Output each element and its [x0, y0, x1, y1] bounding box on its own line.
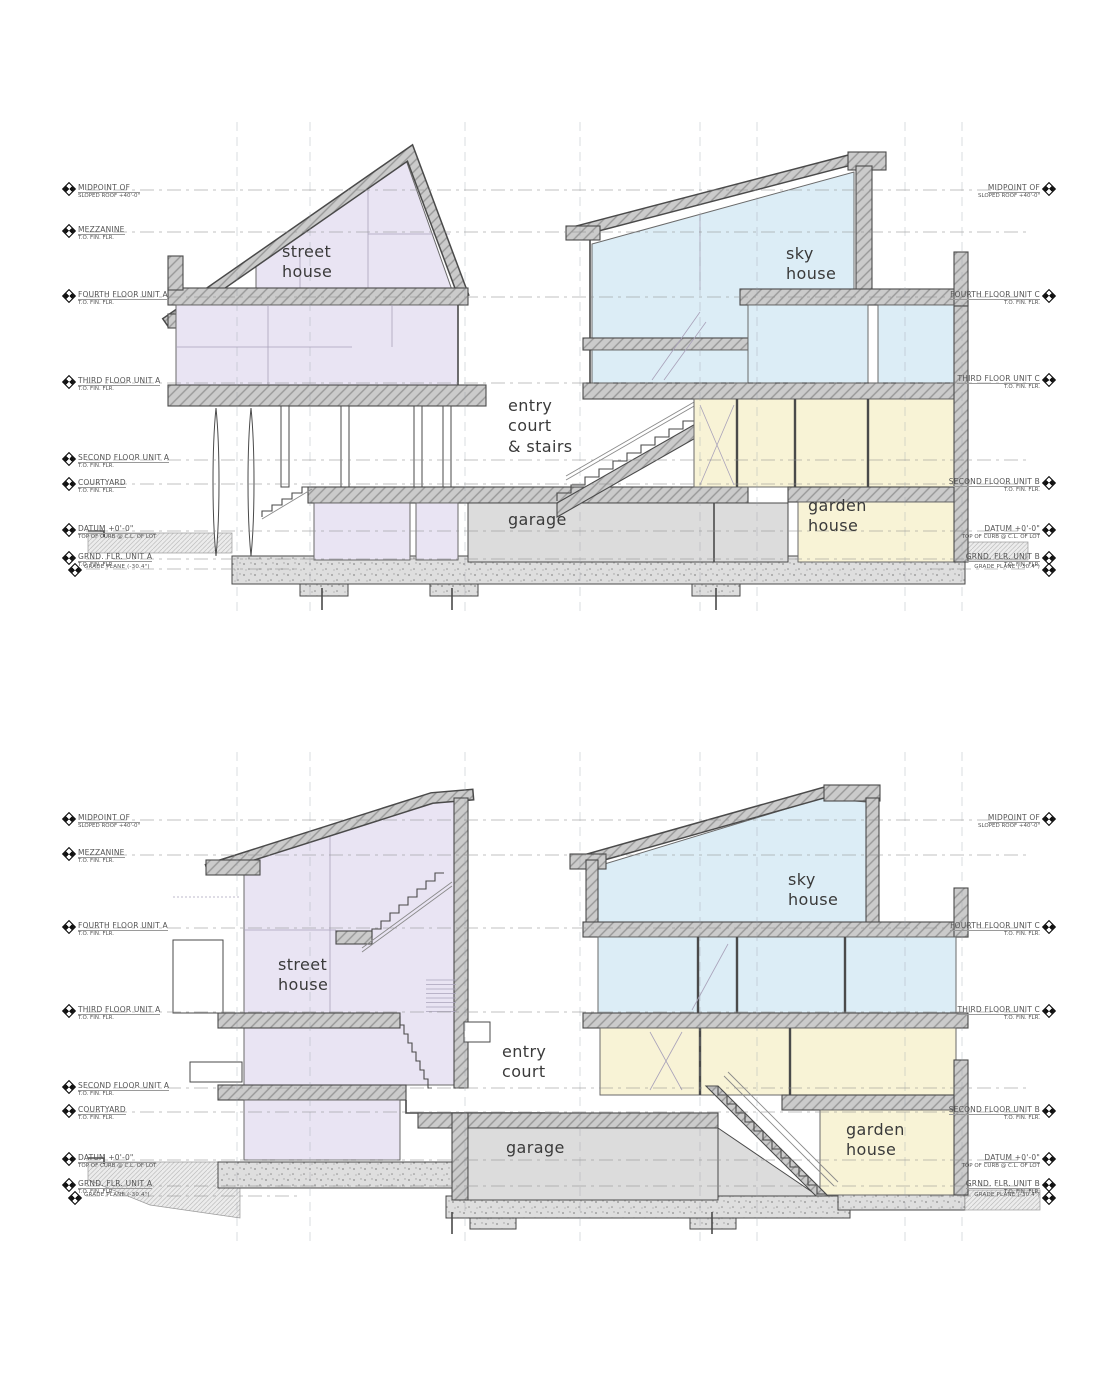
level-marker-icon — [1042, 563, 1056, 577]
level-marker-icon — [62, 224, 76, 238]
level-marker-icon — [62, 523, 76, 537]
level-marker-icon — [62, 289, 76, 303]
level-label: FOURTH FLOOR UNIT CT.O. FIN. FLR. — [950, 290, 1054, 306]
room-label-entry-court: entry court — [502, 1042, 546, 1083]
room-label-garage: garage — [506, 1138, 565, 1158]
level-label: SECOND FLOOR UNIT BT.O. FIN. FLR. — [949, 477, 1054, 493]
level-label: MIDPOINT OFSLOPED ROOF +40'-0" — [64, 183, 140, 199]
level-marker-icon — [1042, 1191, 1056, 1205]
room-label-garden-house: garden house — [846, 1120, 905, 1161]
level-marker-icon — [62, 452, 76, 466]
level-label: SECOND FLOOR UNIT AT.O. FIN. FLR. — [64, 1081, 169, 1097]
level-label: GRADE PLANE (-30.4") — [974, 1192, 1054, 1203]
level-marker-icon — [1042, 476, 1056, 490]
section-drawing-canvas — [0, 0, 1116, 1396]
architectural-section-sheet: MIDPOINT OFSLOPED ROOF +40'-0" MEZZANINE… — [0, 0, 1116, 1396]
level-label: SECOND FLOOR UNIT BT.O. FIN. FLR. — [949, 1105, 1054, 1121]
level-marker-icon — [68, 563, 82, 577]
level-label: FOURTH FLOOR UNIT AT.O. FIN. FLR. — [64, 921, 168, 937]
level-marker-icon — [1042, 289, 1056, 303]
level-label: MIDPOINT OFSLOPED ROOF +40'-0" — [978, 183, 1054, 199]
level-marker-icon — [1042, 920, 1056, 934]
level-label: THIRD FLOOR UNIT AT.O. FIN. FLR. — [64, 1005, 160, 1021]
room-label-street-house: street house — [278, 955, 328, 996]
level-marker-icon — [1042, 1004, 1056, 1018]
room-label-street-house: street house — [282, 242, 332, 283]
level-marker-icon — [62, 920, 76, 934]
level-label: DATUM +0'-0"TOP OF CURB @ C.L. OF LOT — [962, 524, 1054, 540]
level-label: DATUM +0'-0"TOP OF CURB @ C.L. OF LOT — [64, 1153, 156, 1169]
level-label: FOURTH FLOOR UNIT AT.O. FIN. FLR. — [64, 290, 168, 306]
level-marker-icon — [62, 1080, 76, 1094]
level-label: DATUM +0'-0"TOP OF CURB @ C.L. OF LOT — [64, 524, 156, 540]
lower-section-drawing — [88, 785, 1040, 1242]
level-label: COURTYARDT.O. FIN. FLR. — [64, 478, 126, 494]
level-marker-icon — [68, 1191, 82, 1205]
level-label: DATUM +0'-0"TOP OF CURB @ C.L. OF LOT — [962, 1153, 1054, 1169]
level-label: THIRD FLOOR UNIT CT.O. FIN. FLR. — [957, 1005, 1054, 1021]
level-label: MEZZANINET.O. FIN. FLR. — [64, 848, 125, 864]
room-label-garden-house: garden house — [808, 496, 867, 537]
level-label: GRADE PLANE (-30.4") — [70, 564, 150, 575]
level-marker-icon — [1042, 1152, 1056, 1166]
level-label: GRADE PLANE (-30.4") — [70, 1192, 150, 1203]
level-marker-icon — [1042, 373, 1056, 387]
level-label: MIDPOINT OFSLOPED ROOF +40'-0" — [978, 813, 1054, 829]
level-label: COURTYARDT.O. FIN. FLR. — [64, 1105, 126, 1121]
room-label-garage: garage — [508, 510, 567, 530]
level-marker-icon — [1042, 812, 1056, 826]
level-label: MIDPOINT OFSLOPED ROOF +40'-0" — [64, 813, 140, 829]
level-marker-icon — [62, 1104, 76, 1118]
level-label: FOURTH FLOOR UNIT CT.O. FIN. FLR. — [950, 921, 1054, 937]
level-marker-icon — [1042, 182, 1056, 196]
level-label: THIRD FLOOR UNIT CT.O. FIN. FLR. — [957, 374, 1054, 390]
room-label-sky-house: sky house — [786, 244, 836, 285]
level-marker-icon — [62, 812, 76, 826]
level-marker-icon — [1042, 1104, 1056, 1118]
level-marker-icon — [1042, 523, 1056, 537]
level-label: THIRD FLOOR UNIT AT.O. FIN. FLR. — [64, 376, 160, 392]
level-marker-icon — [62, 182, 76, 196]
level-marker-icon — [62, 477, 76, 491]
level-label: GRADE PLANE (-30.4") — [974, 564, 1054, 575]
room-label-sky-house: sky house — [788, 870, 838, 911]
level-marker-icon — [62, 847, 76, 861]
upper-section-drawing — [88, 152, 1028, 618]
room-label-entry-court: entry court & stairs — [508, 396, 573, 457]
level-marker-icon — [62, 1178, 76, 1192]
level-marker-icon — [62, 1152, 76, 1166]
level-label: MEZZANINET.O. FIN. FLR. — [64, 225, 125, 241]
level-marker-icon — [62, 375, 76, 389]
level-label: SECOND FLOOR UNIT AT.O. FIN. FLR. — [64, 453, 169, 469]
level-marker-icon — [62, 1004, 76, 1018]
